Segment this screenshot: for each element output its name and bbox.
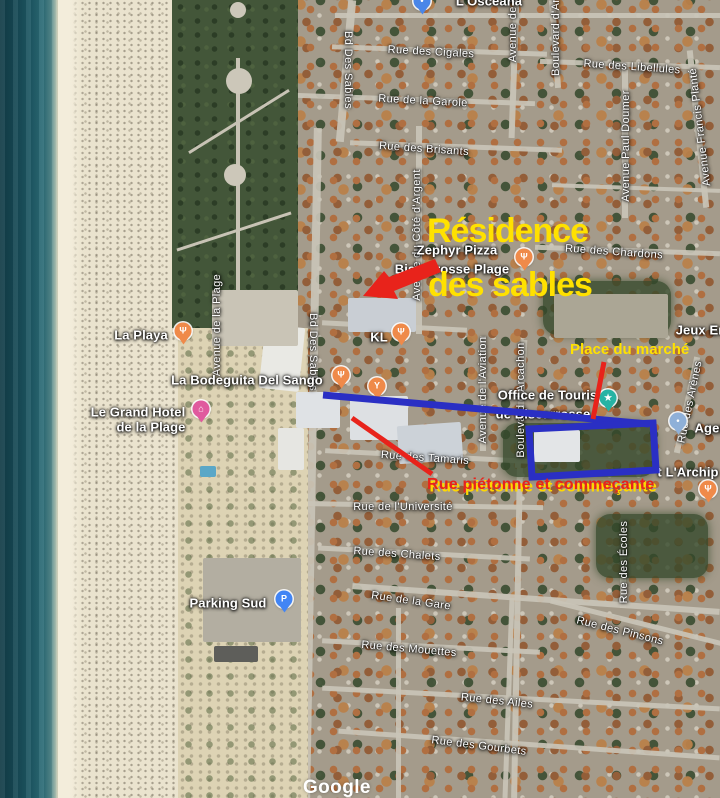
pin-hotel-icon[interactable]: ⌂: [193, 401, 210, 418]
annotation-residence-line2: des sables: [428, 268, 592, 302]
google-watermark: Google: [303, 777, 371, 798]
pin-food-icon[interactable]: Ψ: [516, 249, 533, 266]
pin-food-icon[interactable]: Ψ: [175, 323, 192, 340]
annotation-rue-pietonne: Rue piétonne et commeçante: [427, 477, 654, 493]
pin-food-icon[interactable]: Ψ: [700, 481, 717, 498]
pin-bar-icon[interactable]: Y: [369, 378, 386, 395]
map-pins-layer: •ΨΨΨΨY⌂★•PΨ: [0, 0, 720, 798]
pin-food-icon[interactable]: Ψ: [393, 324, 410, 341]
pin-parking-icon[interactable]: P: [276, 591, 293, 608]
pin-tourism-icon[interactable]: ★: [600, 390, 617, 407]
pin-food-icon[interactable]: Ψ: [333, 367, 350, 384]
satellite-map[interactable]: Rue des CigalesRue de la GaroleRue des L…: [0, 0, 720, 798]
pin-place_light-icon[interactable]: •: [670, 413, 687, 430]
pin-place-icon[interactable]: •: [414, 0, 431, 10]
annotation-place-du-marche: Place du marché: [570, 342, 689, 357]
annotation-residence-line1: Résidence: [427, 214, 588, 248]
